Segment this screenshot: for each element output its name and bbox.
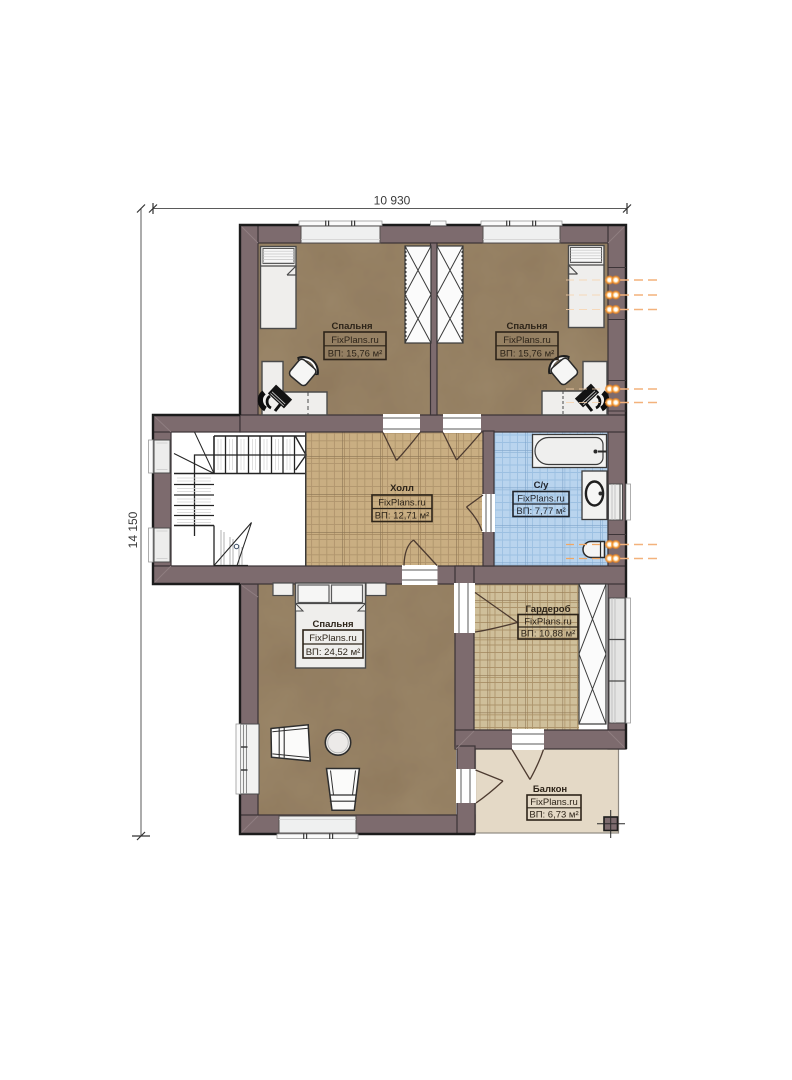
svg-text:FixPlans.ru: FixPlans.ru xyxy=(517,494,565,505)
svg-text:FixPlans.ru: FixPlans.ru xyxy=(378,498,426,509)
svg-text:С/у: С/у xyxy=(534,480,550,491)
svg-text:Гардероб: Гардероб xyxy=(526,604,571,615)
svg-text:ВП: 10,88 м²: ВП: 10,88 м² xyxy=(521,629,576,640)
svg-text:FixPlans.ru: FixPlans.ru xyxy=(331,335,379,346)
svg-text:ВП: 6,73 м²: ВП: 6,73 м² xyxy=(529,810,578,821)
svg-text:Спальня: Спальня xyxy=(506,321,547,332)
svg-text:ВП: 24,52 м²: ВП: 24,52 м² xyxy=(306,647,361,658)
svg-text:FixPlans.ru: FixPlans.ru xyxy=(524,617,572,628)
svg-text:ВП: 15,76 м²: ВП: 15,76 м² xyxy=(500,349,555,360)
svg-text:Спальня: Спальня xyxy=(312,619,353,630)
svg-text:Спальня: Спальня xyxy=(331,321,372,332)
svg-text:Балкон: Балкон xyxy=(533,784,568,795)
svg-text:Холл: Холл xyxy=(390,483,414,494)
svg-text:10 930: 10 930 xyxy=(374,194,411,208)
svg-text:FixPlans.ru: FixPlans.ru xyxy=(530,797,578,808)
svg-text:ВП: 15,76 м²: ВП: 15,76 м² xyxy=(328,349,383,360)
svg-text:FixPlans.ru: FixPlans.ru xyxy=(309,633,357,644)
svg-text:FixPlans.ru: FixPlans.ru xyxy=(503,335,551,346)
svg-text:ВП: 7,77 м²: ВП: 7,77 м² xyxy=(516,506,565,517)
svg-text:14 150: 14 150 xyxy=(126,511,140,548)
svg-text:ВП: 12,71 м²: ВП: 12,71 м² xyxy=(375,511,430,522)
